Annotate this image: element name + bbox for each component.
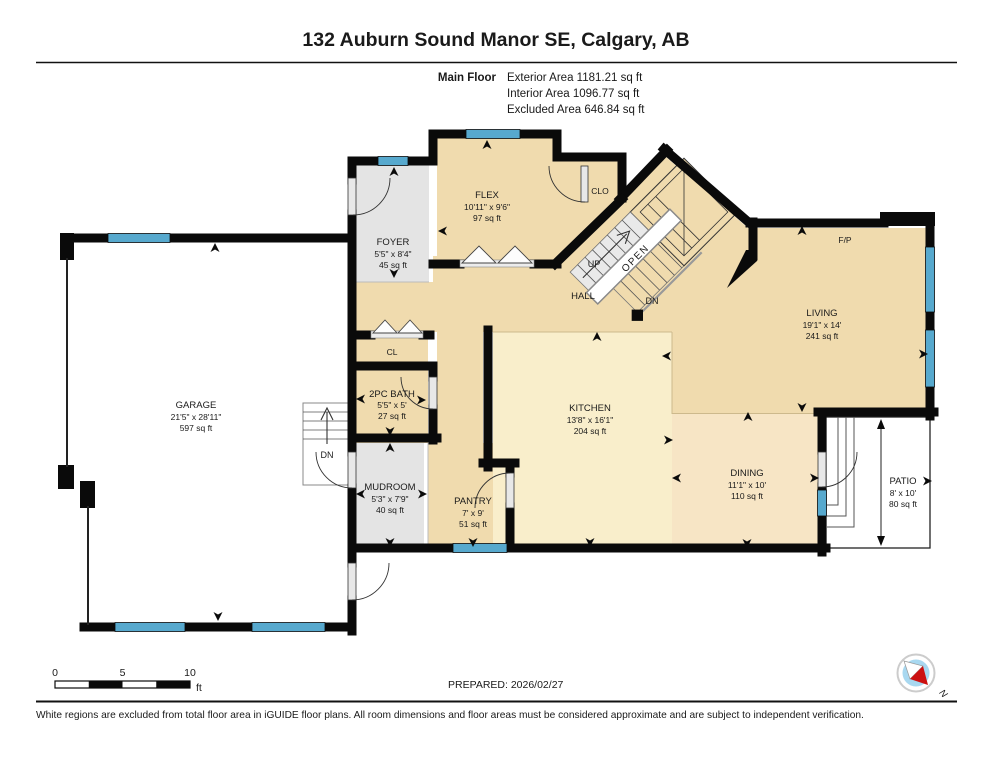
scale-bar: 0 5 10 ft	[52, 667, 202, 694]
mudroom-area: 40 sq ft	[376, 505, 405, 515]
room-label-hall: HALL	[571, 291, 595, 302]
dining-area: 110 sq ft	[731, 491, 764, 501]
garage-area: 597 sq ft	[180, 423, 213, 433]
pantry-dims: 7' x 9'	[462, 508, 484, 518]
room-label-cl: CL	[387, 347, 398, 357]
scale-tick-10: 10	[184, 667, 196, 679]
pantry-area: 51 sq ft	[459, 519, 488, 529]
exterior-area: Exterior Area 1181.21 sq ft	[507, 72, 643, 84]
garage-dims: 21'5" x 28'11"	[171, 412, 222, 422]
room-label-dining: DINING	[730, 468, 763, 479]
scale-tick-0: 0	[52, 667, 58, 679]
garage-thin-walls	[58, 233, 95, 625]
mudroom-dims: 5'3" x 7'9"	[371, 494, 408, 504]
room-label-living: LIVING	[806, 308, 837, 319]
scale-tick-5: 5	[120, 667, 126, 679]
living-area: 241 sq ft	[806, 331, 839, 341]
garage-rear-door	[348, 563, 356, 600]
patio-area: 80 sq ft	[889, 499, 918, 509]
living-dims: 19'1" x 14'	[803, 320, 842, 330]
compass-north-label: N	[937, 688, 950, 701]
stairs-down-label: DN	[646, 296, 659, 306]
dining-dims: 11'1" x 10'	[728, 480, 767, 490]
prepared-date: PREPARED: 2026/02/27	[448, 679, 564, 691]
bath-dims: 5'5" x 5'	[377, 400, 407, 410]
room-label-mudroom: MUDROOM	[364, 482, 415, 493]
room-label-garage: GARAGE	[176, 400, 217, 411]
flex-area: 97 sq ft	[473, 213, 502, 223]
compass-icon: N	[898, 655, 950, 701]
flex-dims: 10'11" x 9'6"	[464, 202, 510, 212]
footer-note: White regions are excluded from total fl…	[36, 710, 864, 721]
foyer-area: 45 sq ft	[379, 260, 408, 270]
mudroom-garage-door	[348, 452, 356, 488]
room-label-kitchen: KITCHEN	[569, 403, 611, 414]
bath-door	[429, 377, 437, 409]
scale-unit: ft	[196, 682, 202, 694]
interior-area: Interior Area 1096.77 sq ft	[507, 88, 640, 100]
room-label-patio: PATIO	[889, 476, 916, 487]
patio-door	[818, 452, 826, 487]
room-label-flex: FLEX	[475, 190, 499, 201]
page-title: 132 Auburn Sound Manor SE, Calgary, AB	[302, 29, 689, 51]
floor-plan: 132 Auburn Sound Manor SE, Calgary, AB M…	[0, 0, 993, 768]
fireplace-label: F/P	[838, 235, 852, 245]
patio-dims: 8' x 10'	[890, 488, 917, 498]
kitchen-dims: 13'8" x 16'1"	[567, 415, 614, 425]
stairs-up-label: UP	[588, 259, 601, 269]
floor-plan-page: 132 Auburn Sound Manor SE, Calgary, AB M…	[0, 0, 993, 768]
garage-stair	[303, 403, 352, 485]
floor-label: Main Floor	[438, 72, 497, 84]
room-label-clo: CLO	[591, 186, 609, 196]
bath-area: 27 sq ft	[378, 411, 407, 421]
kitchen-area: 204 sq ft	[574, 426, 607, 436]
room-label-foyer: FOYER	[377, 237, 410, 248]
closet-door	[581, 166, 588, 202]
fireplace-box	[880, 212, 935, 226]
garage-stairs-down-label: DN	[321, 450, 334, 460]
excluded-area: Excluded Area 646.84 sq ft	[507, 104, 645, 116]
room-label-bath: 2PC BATH	[369, 389, 415, 400]
front-door	[348, 178, 356, 215]
pantry-door	[506, 473, 514, 508]
foyer-dims: 5'5" x 8'4"	[374, 249, 411, 259]
room-label-pantry: PANTRY	[454, 496, 492, 507]
